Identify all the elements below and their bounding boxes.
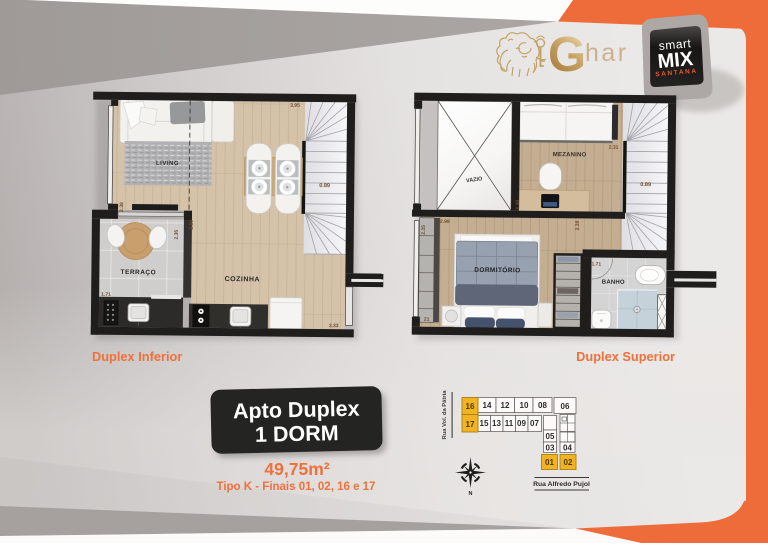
svg-text:N: N xyxy=(469,491,473,497)
svg-text:01: 01 xyxy=(545,458,554,467)
svg-text:1 DORM: 1 DORM xyxy=(255,421,339,447)
svg-text:MEZANINO: MEZANINO xyxy=(553,152,587,158)
svg-text:16: 16 xyxy=(466,402,475,411)
svg-text:COZINHA: COZINHA xyxy=(225,276,260,283)
svg-text:G: G xyxy=(548,28,586,82)
svg-text:1.71: 1.71 xyxy=(591,262,601,268)
svg-text:3.33: 3.33 xyxy=(329,323,339,329)
svg-text:Rua Alfredo Pujol: Rua Alfredo Pujol xyxy=(533,481,590,488)
svg-text:Tipo K - Finais 01, 02, 16 e 1: Tipo K - Finais 01, 02, 16 e 17 xyxy=(217,481,376,493)
svg-text:11: 11 xyxy=(505,419,514,428)
svg-text:03: 03 xyxy=(546,444,555,453)
svg-text:har: har xyxy=(585,39,629,67)
svg-text:Rua Vol. da Pátria: Rua Vol. da Pátria xyxy=(442,390,448,440)
svg-text:13: 13 xyxy=(492,419,501,428)
svg-text:2.35: 2.35 xyxy=(421,225,427,235)
svg-text:0.89: 0.89 xyxy=(319,183,330,189)
svg-text:05: 05 xyxy=(546,432,555,441)
svg-text:07: 07 xyxy=(530,419,539,428)
svg-text:04: 04 xyxy=(563,444,572,453)
svg-text:02: 02 xyxy=(564,458,573,467)
svg-text:Duplex Inferior: Duplex Inferior xyxy=(92,349,182,364)
svg-text:14: 14 xyxy=(483,401,492,410)
svg-text:TERRAÇO: TERRAÇO xyxy=(121,269,157,276)
svg-text:12: 12 xyxy=(501,401,510,410)
svg-text:2.38: 2.38 xyxy=(575,220,581,230)
svg-text:3.95: 3.95 xyxy=(290,103,300,109)
svg-text:Duplex Superior: Duplex Superior xyxy=(576,349,675,364)
svg-text:08: 08 xyxy=(538,401,547,410)
svg-text:BANHO: BANHO xyxy=(602,280,625,286)
svg-text:2.50: 2.50 xyxy=(189,220,195,230)
svg-text:15: 15 xyxy=(480,419,489,428)
svg-text:2.38: 2.38 xyxy=(119,202,125,212)
svg-text:10: 10 xyxy=(520,401,529,410)
svg-text:LIVING: LIVING xyxy=(156,161,179,167)
svg-text:2.98: 2.98 xyxy=(440,219,450,225)
svg-text:2.38: 2.38 xyxy=(515,200,521,210)
svg-text:2.31: 2.31 xyxy=(609,145,619,151)
svg-text:0.89: 0.89 xyxy=(640,182,651,188)
svg-text:1.71: 1.71 xyxy=(101,292,111,298)
svg-text:Apto Duplex: Apto Duplex xyxy=(233,397,360,424)
svg-text:21: 21 xyxy=(424,317,430,323)
svg-text:06: 06 xyxy=(561,402,570,411)
svg-text:49,75m²: 49,75m² xyxy=(264,459,329,479)
svg-text:17: 17 xyxy=(466,420,475,429)
svg-text:09: 09 xyxy=(517,419,526,428)
svg-text:2.36: 2.36 xyxy=(174,230,180,240)
